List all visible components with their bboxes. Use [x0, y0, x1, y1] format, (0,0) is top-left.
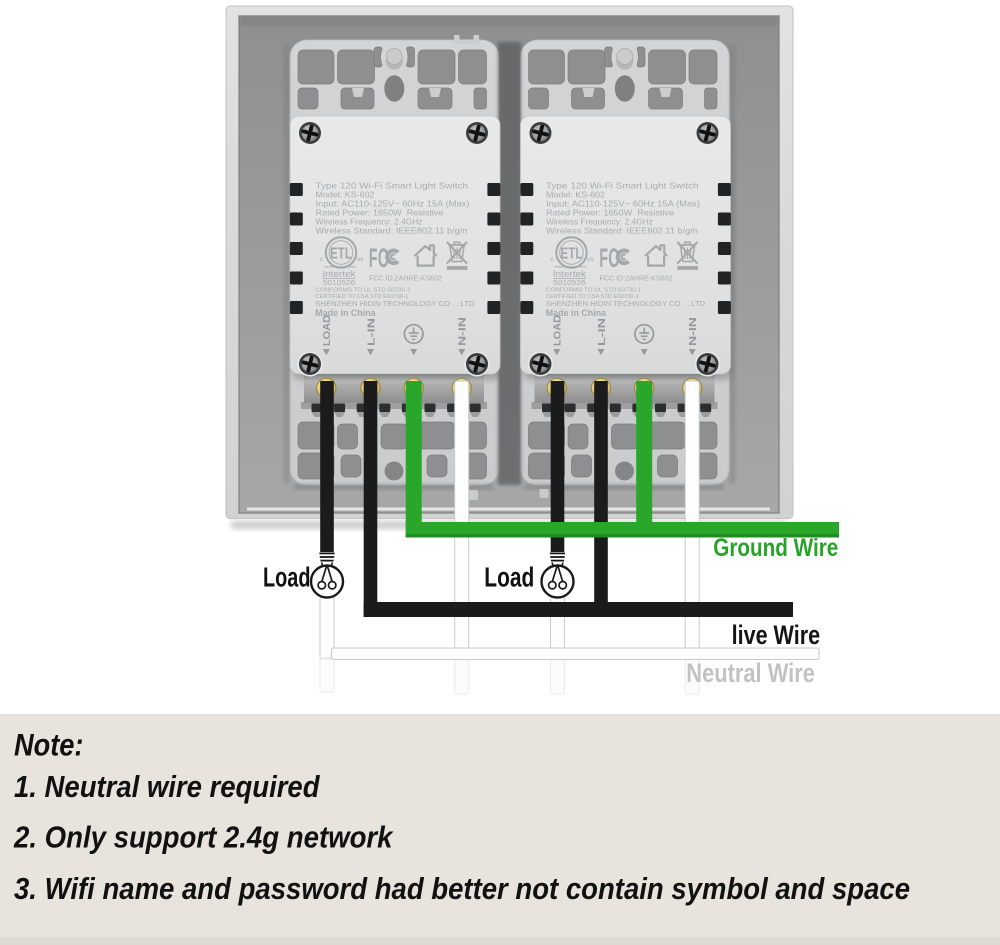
svg-text:Wireless Standard: IEEE802.11: Wireless Standard: IEEE802.11 b/g/n	[316, 226, 468, 236]
svg-text:LOAD: LOAD	[322, 315, 333, 346]
svg-text:live Wire: live Wire	[732, 620, 821, 650]
svg-text:F: F	[369, 243, 378, 273]
svg-text:CONFORMS TO UL STD 60730-1: CONFORMS TO UL STD 60730-1	[315, 287, 410, 293]
svg-text:Ground Wire: Ground Wire	[713, 534, 838, 562]
svg-text:ETL: ETL	[330, 246, 352, 263]
svg-text:Neutral Wire: Neutral Wire	[686, 658, 815, 688]
svg-text:Load: Load	[484, 562, 534, 593]
svg-text:us: us	[357, 256, 365, 263]
svg-text:Load: Load	[263, 562, 311, 593]
svg-text:2. Only support 2.4g network: 2. Only support 2.4g network	[13, 821, 394, 855]
svg-text:1. Neutral wire required: 1. Neutral wire required	[14, 770, 321, 804]
svg-text:5010526: 5010526	[323, 278, 355, 287]
svg-text:L-IN: L-IN	[366, 318, 377, 346]
svg-text:N-IN: N-IN	[458, 317, 469, 346]
svg-text:Note:: Note:	[14, 727, 84, 763]
svg-text:SHENZHEN HIDIN TECHNOLOGY CO .: SHENZHEN HIDIN TECHNOLOGY CO . , LTD	[315, 299, 474, 308]
svg-text:FCC ID:2AHRE-KS602: FCC ID:2AHRE-KS602	[369, 274, 442, 283]
svg-text:3. Wifi name and password had: 3. Wifi name and password had better not…	[14, 872, 910, 906]
